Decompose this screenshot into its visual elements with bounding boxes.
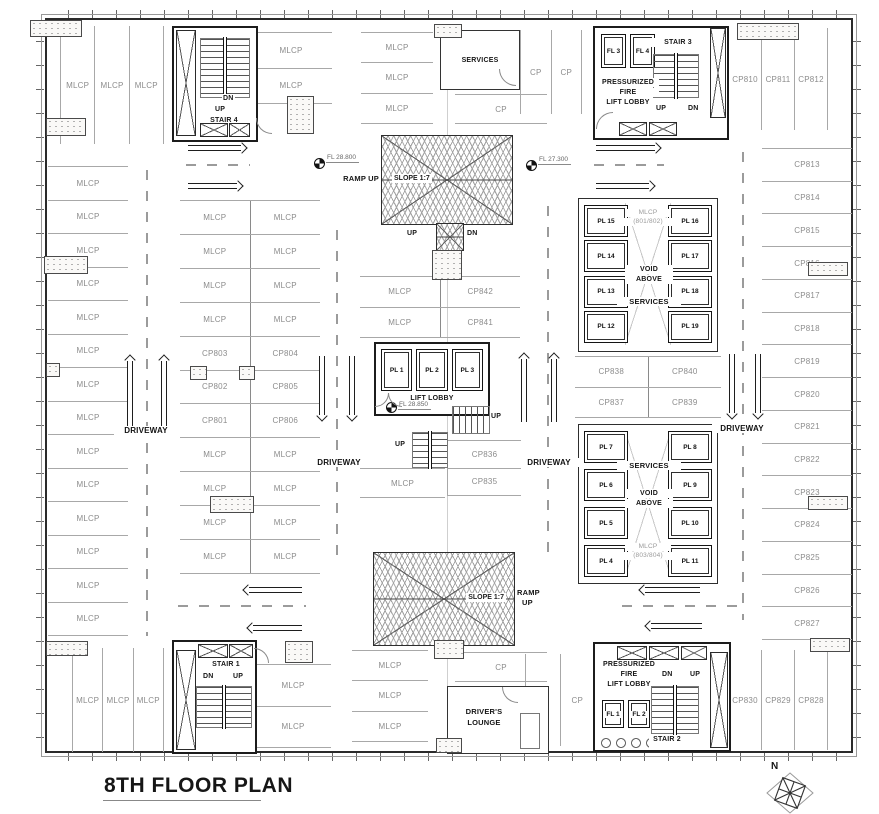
parking-stall: CP812	[794, 28, 828, 130]
stall-label: CP	[495, 105, 507, 114]
ramp-up-text: UP	[406, 229, 418, 238]
floor-plan-drawing: MLCPMLCPMLCP MLCPMLCP MLCPMLCPMLCP CPCP …	[0, 0, 879, 814]
ramp-upper: SLOPE 1:7	[381, 135, 513, 225]
parking-stall: MLCP	[48, 300, 128, 334]
stall-label: MLCP	[391, 479, 414, 488]
parking-stall: MLCP	[250, 32, 332, 68]
level-text: FL 27.300	[538, 156, 571, 165]
stall-label: MLCP	[274, 450, 297, 459]
stall-label: CP806	[273, 416, 298, 425]
traffic-arrow-up-icon	[124, 356, 136, 430]
shaft-x-icon	[200, 123, 228, 137]
stall-label: MLCP	[203, 315, 226, 324]
concrete-column-block	[30, 20, 82, 37]
wc-fixture	[520, 713, 540, 749]
parking-stall: MLCP	[250, 235, 321, 268]
lift-cell: PL 8	[668, 431, 712, 463]
parking-stall: CP814	[762, 181, 852, 214]
wall-ticks-left	[36, 18, 44, 753]
parking-row: MLCP MLCP	[180, 539, 320, 574]
lift-cell: PL 9	[668, 469, 712, 501]
concrete-column-block	[285, 641, 313, 663]
parking-stall: CP803	[180, 337, 250, 370]
lift-cell: PL 2	[416, 349, 447, 391]
parking-stall: MLCP	[48, 535, 128, 569]
stair-treads	[200, 38, 250, 98]
traffic-arrow-right-icon	[188, 142, 246, 154]
stall-label: MLCP	[378, 691, 401, 700]
fire-lobby-label: FIRE	[597, 88, 659, 97]
lift-label: FL 3	[606, 48, 621, 55]
concrete-column-block	[737, 23, 799, 40]
traffic-arrow-up-icon	[158, 356, 170, 430]
lift-label: PL 4	[598, 558, 614, 565]
lift-label: FL 2	[631, 711, 646, 718]
lift-cell: PL 12	[584, 311, 628, 343]
lift-cell: PL 6	[584, 469, 628, 501]
stair1-core: STAIR 1 DN UP	[172, 640, 257, 754]
parking-stall: CP822	[762, 443, 852, 476]
parking-stall: MLCP	[361, 62, 433, 92]
parking-stall: MLCP	[180, 269, 250, 302]
stair4-core: DN UP STAIR 4	[172, 26, 258, 142]
stall-label: CP	[495, 663, 507, 672]
parking-stall: CP819	[762, 344, 852, 377]
concrete-column-block	[190, 366, 207, 380]
lift-label: PL 5	[598, 520, 614, 527]
stall-label: MLCP	[106, 696, 129, 705]
ramp-dn-text: DN	[466, 229, 479, 238]
lift-cell: PL 10	[668, 507, 712, 539]
parking-stall: CP	[560, 654, 596, 746]
traffic-arrow-right-icon	[596, 180, 654, 192]
parking-stall-cp-single: CP	[455, 94, 547, 124]
void-label: VOID	[625, 265, 673, 274]
lift-label: PL 19	[680, 323, 699, 330]
stall-label: MLCP	[281, 722, 304, 731]
parking-row: CP838 CP840	[575, 356, 721, 387]
stall-label: CP812	[798, 75, 823, 84]
stall-label: MLCP	[76, 447, 99, 456]
stall-label: CP818	[794, 324, 819, 333]
stall-label: CP827	[794, 619, 819, 628]
stall-label: MLCP	[203, 213, 226, 222]
stall-label: MLCP	[388, 287, 411, 296]
stall-label: MLCP	[281, 681, 304, 690]
parking-stall: MLCP	[48, 434, 128, 468]
slope-label: SLOPE 1:7	[466, 593, 506, 602]
stall-label: CP803	[202, 349, 227, 358]
concrete-column-block	[44, 256, 88, 274]
stair-name-label: STAIR 1	[198, 660, 254, 669]
parking-stall: CP817	[762, 279, 852, 312]
lift-label: PL 11	[681, 558, 700, 565]
wall-ticks-right	[853, 18, 861, 753]
lift-cell: FL 3	[601, 34, 626, 68]
stall-label: MLCP	[66, 81, 89, 90]
north-arrow-icon	[762, 772, 818, 814]
parking-stall: MLCP	[250, 269, 321, 302]
lift-label: PL 17	[680, 253, 699, 260]
stall-label: MLCP	[76, 581, 99, 590]
shaft-x-icon	[619, 122, 647, 136]
stall-label: MLCP	[76, 179, 99, 188]
parking-row: CP803 CP804	[180, 336, 320, 370]
stall-label: CP836	[472, 450, 497, 459]
parking-bay-bottom-right: CP830CP829CP828	[728, 650, 828, 750]
stall-label: CP	[560, 68, 572, 77]
lane-dashed-line	[622, 605, 738, 607]
parking-stall: MLCP	[352, 711, 428, 742]
stall-label: MLCP	[76, 212, 99, 221]
stall-label: CP817	[794, 291, 819, 300]
lift-label: PL 13	[596, 288, 615, 295]
parking-stall: MLCP	[250, 201, 321, 234]
level-text: FL 28.850	[398, 401, 431, 410]
parking-row: MLCP CP841	[360, 307, 520, 339]
lane-dashed-line	[594, 164, 664, 166]
stall-label: MLCP	[385, 104, 408, 113]
lane-dashed-line	[742, 152, 744, 620]
concrete-column-block	[46, 118, 86, 136]
mlcp-ref-label: MLCP	[625, 543, 671, 551]
stair-treads	[653, 54, 699, 98]
traffic-arrow-up-icon	[548, 354, 560, 422]
traffic-arrow-left-icon	[244, 584, 302, 596]
parking-row: CP801 CP806	[180, 403, 320, 437]
parking-stall: CP839	[648, 388, 722, 418]
parking-bay-right-column: CP813CP814CP815CP816CP817CP818CP819CP820…	[762, 148, 852, 640]
parking-stall: CP842	[440, 277, 521, 307]
ramp-up-label: RAMP UP	[328, 174, 380, 183]
parking-row: MLCP MLCP	[180, 268, 320, 302]
stall-label: CP822	[794, 455, 819, 464]
parking-stall: MLCP	[180, 235, 250, 268]
stall-label: CP841	[468, 318, 493, 327]
stall-label: MLCP	[279, 46, 302, 55]
concrete-column-block	[436, 738, 462, 753]
parking-stall: CP824	[762, 508, 852, 541]
parking-stall: MLCP	[250, 472, 321, 505]
stall-label: MLCP	[274, 281, 297, 290]
parking-stall: MLCP	[48, 200, 128, 234]
stall-label: MLCP	[76, 614, 99, 623]
traffic-arrow-left-icon	[640, 584, 700, 596]
lift-cell: PL 4	[584, 545, 628, 577]
parking-stall: CP830	[728, 650, 761, 750]
parking-bay-top-mid: MLCPMLCPMLCP	[361, 32, 433, 124]
lane-dashed-line	[146, 170, 148, 636]
void-label: VOID	[625, 489, 673, 498]
stall-label: CP830	[732, 696, 757, 705]
traffic-arrow-up-icon	[518, 354, 530, 422]
parking-stall: MLCP	[250, 506, 321, 539]
lift-cell: FL 1	[602, 700, 624, 728]
driveway-label: DRIVEWAY	[712, 424, 772, 433]
parking-stall: CP818	[762, 312, 852, 345]
stall-label: MLCP	[100, 81, 123, 90]
ramp-lower: SLOPE 1:7	[373, 552, 515, 646]
parking-stall: CP810	[728, 28, 761, 130]
traffic-arrow-right-icon	[188, 180, 242, 192]
parking-stall: CP825	[762, 541, 852, 574]
parking-stall: MLCP	[360, 277, 440, 307]
stall-label: CP820	[794, 390, 819, 399]
parking-stall: CP806	[250, 404, 321, 437]
stall-label: CP821	[794, 422, 819, 431]
traffic-arrow-down-icon	[752, 354, 764, 418]
parking-stall: MLCP	[48, 367, 128, 401]
stall-label: CP801	[202, 416, 227, 425]
lift-label: PL 18	[680, 288, 699, 295]
parking-stall: MLCP	[94, 26, 128, 144]
driveway-label: DRIVEWAY	[308, 458, 370, 467]
stair-dn-label: DN	[222, 94, 235, 103]
parking-stall: MLCP	[48, 166, 128, 200]
lift-cell: PL 19	[668, 311, 712, 343]
stall-label: MLCP	[274, 518, 297, 527]
mlcp-ref-label: (803/804)	[621, 552, 675, 560]
concrete-column-block	[46, 641, 88, 656]
stair-up-label: UP	[232, 672, 244, 681]
stall-label: CP826	[794, 586, 819, 595]
lane-dashed-line	[178, 605, 306, 607]
parking-stall: CP801	[180, 404, 250, 437]
stall-label: MLCP	[76, 346, 99, 355]
parking-row: MLCP MLCP	[180, 200, 320, 234]
stair-treads	[452, 406, 490, 434]
stall-label: MLCP	[279, 81, 302, 90]
stall-label: CP810	[732, 75, 757, 84]
stair-dn-label: DN	[687, 104, 700, 113]
parking-grid-mid-top: MLCP CP842 MLCP CP841	[360, 276, 520, 338]
parking-grid-center: MLCP MLCP MLCP MLCP MLCP MLCP MLCP MLCP …	[180, 200, 320, 574]
fire-lobby-label: FIRE	[597, 670, 661, 679]
parking-stall: MLCP	[180, 438, 250, 471]
void-label: ABOVE	[625, 275, 673, 284]
lift-cell: PL 11	[668, 545, 712, 577]
lift-label: PL 15	[596, 218, 615, 225]
stall-label: CP819	[794, 357, 819, 366]
parking-stall: MLCP	[72, 648, 102, 752]
concrete-column-block	[46, 363, 60, 377]
concrete-column-block	[432, 250, 462, 280]
shaft-x-icon	[229, 644, 253, 658]
stall-label: MLCP	[76, 480, 99, 489]
shaft-x-icon	[710, 652, 728, 748]
room-label: SERVICES	[461, 56, 500, 65]
lift-label: PL 1	[389, 367, 405, 374]
bollard-circles	[599, 738, 649, 749]
lift-label: FL 4	[635, 48, 650, 55]
mlcp-ref-label: (801/802)	[621, 218, 675, 226]
stall-label: CP	[530, 68, 542, 77]
stair-treads	[651, 686, 699, 734]
lift-cell: PL 7	[584, 431, 628, 463]
concrete-column-block	[808, 262, 848, 276]
stall-label: CP825	[794, 553, 819, 562]
shaft-x-icon	[649, 646, 679, 660]
parking-row: CP837 CP839	[575, 387, 721, 419]
room-label: DRIVER'S	[450, 707, 518, 716]
parking-stall: MLCP	[48, 468, 128, 502]
parking-bay-topleft-inner: MLCPMLCP	[250, 32, 332, 104]
mlcp-ref-label: MLCP	[625, 209, 671, 217]
concrete-column-block	[210, 496, 254, 513]
parking-stall: CP837	[575, 388, 648, 418]
lift-cell: PL 14	[584, 240, 628, 272]
stall-label: MLCP	[76, 380, 99, 389]
stall-label: CP840	[672, 367, 697, 376]
stall-label: CP839	[672, 398, 697, 407]
stall-label: MLCP	[388, 318, 411, 327]
driveway-label: DRIVEWAY	[518, 458, 580, 467]
stall-label: MLCP	[378, 722, 401, 731]
shaft-x-icon	[649, 122, 677, 136]
parking-stall: CP836	[448, 440, 521, 468]
stall-label: CP824	[794, 520, 819, 529]
stall-label: CP804	[273, 349, 298, 358]
stall-label: CP829	[765, 696, 790, 705]
traffic-arrow-down-icon	[346, 356, 358, 420]
traffic-arrow-left-icon	[248, 622, 302, 634]
shaft-x-icon	[176, 30, 196, 136]
shaft-x-icon	[710, 28, 726, 118]
parking-bay-top-right: CP810CP811CP812	[728, 28, 828, 130]
stair-up-label: UP	[655, 104, 667, 113]
lift-label: PL 12	[596, 323, 615, 330]
stall-label: MLCP	[76, 696, 99, 705]
concrete-column-block	[810, 638, 850, 652]
parking-stall: CP805	[250, 371, 321, 404]
parking-stall: MLCP	[360, 308, 440, 338]
stall-label: CP815	[794, 226, 819, 235]
drivers-lounge-room: DRIVER'S LOUNGE	[447, 686, 549, 754]
lift-cell: PL 17	[668, 240, 712, 272]
parking-grid-cp-mid: CP838 CP840 CP837 CP839	[575, 356, 721, 418]
lift-label: PL 6	[598, 482, 614, 489]
parking-stall: MLCP	[180, 303, 250, 336]
stall-label: CP805	[273, 382, 298, 391]
parking-row: MLCP MLCP	[180, 302, 320, 336]
stall-label: MLCP	[76, 547, 99, 556]
stall-label: MLCP	[385, 43, 408, 52]
parking-stall: CP811	[761, 28, 794, 130]
stall-label: CP835	[472, 477, 497, 486]
parking-stall: CP828	[794, 650, 828, 750]
parking-stall: MLCP	[250, 303, 321, 336]
level-marker-icon	[526, 160, 537, 171]
parking-stall: MLCP	[48, 568, 128, 602]
parking-stall: MLCP	[180, 201, 250, 234]
parking-stall: MLCP	[361, 93, 433, 124]
stair-dn-label: DN	[202, 672, 215, 681]
passenger-lift-bank: PL 1PL 2PL 3	[381, 349, 483, 391]
lane-dashed-line	[336, 230, 338, 560]
shaft-x-icon	[617, 646, 647, 660]
stall-label: MLCP	[137, 696, 160, 705]
lift-label: PL 9	[682, 482, 698, 489]
parking-stall: MLCP	[102, 648, 132, 752]
lift-core-upper-right: PL 15PL 14PL 13PL 12 PL 16PL 17PL 18PL 1…	[578, 198, 718, 352]
stall-label: MLCP	[76, 313, 99, 322]
parking-stall: CP821	[762, 410, 852, 443]
stall-label: CP814	[794, 193, 819, 202]
stall-label: MLCP	[385, 73, 408, 82]
concrete-column-block	[434, 640, 464, 659]
traffic-arrow-right-icon	[596, 142, 660, 154]
services-label: SERVICES	[617, 461, 681, 470]
parking-row: MLCP MLCP	[180, 234, 320, 268]
stall-label: MLCP	[203, 484, 226, 493]
title-underline	[103, 800, 261, 801]
concrete-column-block	[287, 96, 314, 134]
stall-label: MLCP	[203, 552, 226, 561]
stall-label: CP811	[766, 75, 791, 84]
parking-stall: MLCP	[180, 540, 250, 573]
shaft-x-icon	[229, 123, 250, 137]
stair-treads	[196, 686, 252, 728]
stair-up-label: UP	[394, 440, 406, 449]
lift-label: PL 14	[596, 253, 615, 260]
lift-cell: PL 1	[381, 349, 412, 391]
stall-label: CP	[571, 696, 583, 705]
stall-label: MLCP	[274, 552, 297, 561]
parking-stall: CP	[551, 30, 583, 114]
parking-stall: CP838	[575, 357, 648, 387]
traffic-arrow-down-icon	[316, 356, 328, 420]
parking-bay-bottom-left: MLCPMLCPMLCP	[72, 648, 164, 752]
parking-bay-bottomleft-inner: MLCPMLCP	[255, 664, 331, 748]
stall-label: CP802	[202, 382, 227, 391]
stair-treads	[412, 432, 448, 468]
level-text: FL 28.800	[326, 154, 359, 163]
stall-label: MLCP	[274, 213, 297, 222]
door-swing-arc	[502, 687, 518, 703]
parking-stall-mid-mlcp: MLCP	[360, 468, 445, 498]
stall-label: MLCP	[203, 247, 226, 256]
stall-label: MLCP	[76, 246, 99, 255]
lift-label: PL 2	[424, 367, 440, 374]
parking-bay-mid-bottom: CP836CP835	[447, 440, 521, 496]
parking-stall: CP813	[762, 148, 852, 181]
fire-lift-bank: FL 1FL 2	[602, 700, 650, 728]
stair-name-label: STAIR 3	[647, 38, 709, 47]
slope-label: SLOPE 1:7	[392, 174, 432, 183]
ramp-up-label: RAMP	[516, 588, 541, 597]
traffic-arrow-down-icon	[726, 354, 738, 418]
parking-stall: MLCP	[255, 706, 331, 749]
parking-bay-bottom-mid: MLCPMLCPMLCP	[352, 650, 428, 742]
ramp-up-label: UP	[521, 598, 534, 607]
concrete-column-block	[808, 496, 848, 510]
parking-stall: MLCP	[255, 664, 331, 706]
stair-dn-label: DN	[661, 670, 674, 679]
stair-up-label: UP	[490, 412, 502, 421]
parking-stall: MLCP	[352, 650, 428, 680]
parking-bay-left-column: MLCPMLCPMLCPMLCPMLCPMLCPMLCPMLCPMLCPMLCP…	[48, 166, 128, 636]
stair-up-label: UP	[689, 670, 701, 679]
parking-stall: MLCP	[48, 334, 128, 368]
lift-core-lower-right: PL 7PL 6PL 5PL 4 PL 8PL 9PL 10PL 11 SERV…	[578, 424, 718, 584]
driveway-label: DRIVEWAY	[114, 426, 178, 435]
void-label: ABOVE	[625, 499, 673, 508]
ramp-updn-strip	[436, 223, 464, 251]
parking-stall: CP827	[762, 606, 852, 640]
fire-lobby-label: PRESSURIZED	[597, 78, 659, 87]
stall-label: CP837	[599, 398, 624, 407]
stair3-core: FL 3FL 4 STAIR 3 PRESSURIZED FIRE LIFT L…	[593, 26, 729, 140]
